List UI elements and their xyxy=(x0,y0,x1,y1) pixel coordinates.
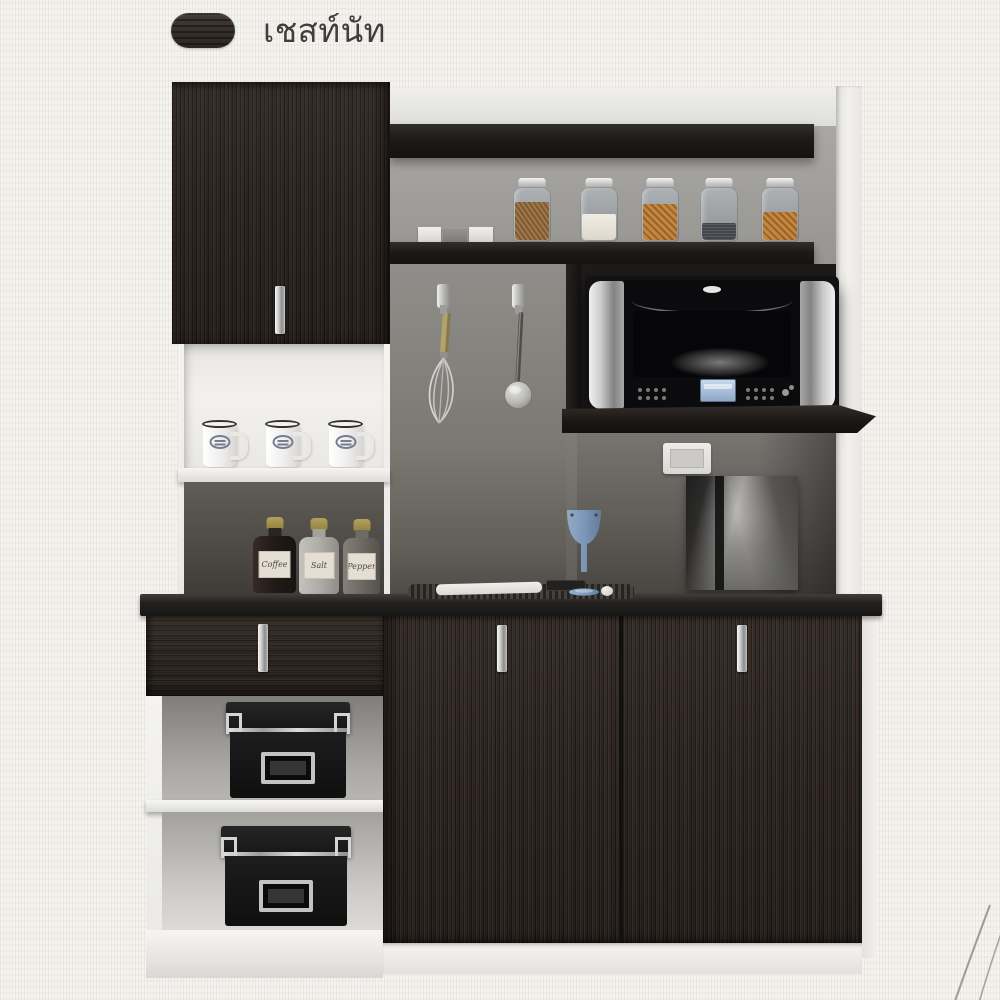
product-showcase: เชสท์นัท xyxy=(0,0,1000,1000)
microwave-handle xyxy=(589,281,624,409)
jar-glass xyxy=(700,187,738,242)
coffee-mug xyxy=(266,423,299,467)
hutch-top-shelf xyxy=(390,124,814,158)
wine-glass xyxy=(555,508,613,598)
flip-shelf-door xyxy=(562,405,876,433)
base-door-divider xyxy=(619,612,623,944)
hutch-top-panel xyxy=(390,88,838,126)
jar-glass xyxy=(580,187,618,242)
box-corner-bracket xyxy=(221,837,237,858)
pantry-jar-flour xyxy=(580,178,618,242)
hutch-side-panel xyxy=(836,86,862,612)
pantry-jar-grains xyxy=(513,178,551,242)
framed-city-photo xyxy=(686,476,798,590)
spice-label: Salt xyxy=(304,552,335,579)
jar-glass xyxy=(513,187,551,242)
hutch-mid-shelf xyxy=(390,242,814,264)
microwave-door xyxy=(624,280,800,410)
storage-box xyxy=(225,826,347,926)
pantry-jar-beans xyxy=(700,178,738,242)
jar-glass xyxy=(641,187,679,242)
hanging-whisk xyxy=(424,280,464,430)
microwave-oven xyxy=(585,276,839,414)
finish-name-label: เชสท์นัท xyxy=(263,4,386,57)
microwave-display xyxy=(700,379,736,402)
storage-box xyxy=(230,702,346,798)
hutch-shelf-board xyxy=(178,468,390,482)
spice-label: Pepper xyxy=(347,553,376,580)
wood-finish-swatch-icon[interactable] xyxy=(171,13,235,48)
box-corner-bracket xyxy=(226,713,242,734)
microwave-window xyxy=(633,311,791,377)
spice-bottle-salt: Salt xyxy=(299,518,339,594)
mug-emblem xyxy=(335,435,356,449)
pantry-jar-pasta xyxy=(641,178,679,242)
wall-hook-icon xyxy=(512,284,525,308)
box-corner-bracket xyxy=(334,713,350,734)
wall-outlet xyxy=(663,443,711,474)
microwave-buttons xyxy=(746,388,750,392)
shelf-board xyxy=(146,800,383,812)
microwave-buttons xyxy=(638,388,642,392)
upper-cabinet-handle xyxy=(275,286,285,334)
coffee-mug xyxy=(329,423,362,467)
microwave-knob xyxy=(782,389,789,396)
base-door-handle-right xyxy=(737,625,747,672)
mug-emblem xyxy=(209,435,230,449)
spice-bottle-pepper: Pepper xyxy=(343,519,380,595)
napkin-box xyxy=(418,227,441,243)
napkin-box xyxy=(443,229,467,243)
wall-hook-icon xyxy=(437,284,450,308)
mug-emblem xyxy=(272,435,293,449)
napkin-box xyxy=(469,227,493,243)
coffee-mug xyxy=(203,423,236,467)
spice-bottle-coffee: Coffee xyxy=(253,517,296,593)
microwave-niche-divider xyxy=(566,264,581,432)
base-side-panel xyxy=(862,612,878,958)
spice-label: Coffee xyxy=(258,551,291,578)
hanging-ladle xyxy=(498,280,542,430)
box-label-holder xyxy=(259,880,313,912)
base-plinth-left xyxy=(146,930,383,978)
base-door-handle-left xyxy=(497,625,507,672)
jar-glass xyxy=(761,187,799,242)
box-corner-bracket xyxy=(335,837,351,858)
base-plinth-right xyxy=(383,943,862,974)
drawer-handle xyxy=(258,624,268,672)
box-label-holder xyxy=(261,752,315,784)
microwave-handle xyxy=(800,281,835,409)
pantry-jar-pasta xyxy=(761,178,799,242)
